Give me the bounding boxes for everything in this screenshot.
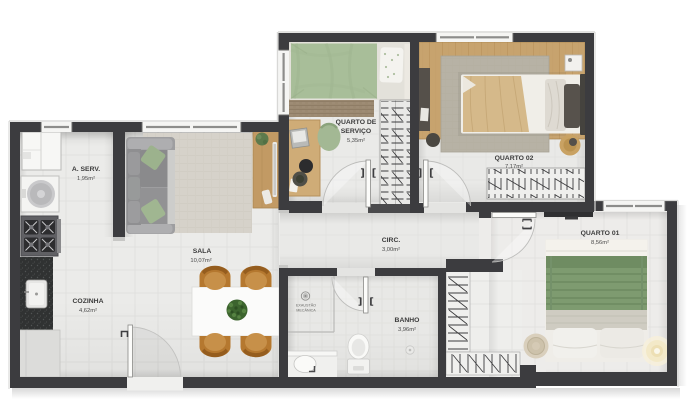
svg-text:3,96m²: 3,96m²	[398, 327, 416, 333]
svg-text:8,56m²: 8,56m²	[591, 240, 609, 246]
svg-text:5,35m²: 5,35m²	[347, 138, 365, 144]
svg-text:SALA: SALA	[193, 248, 212, 255]
svg-text:A. SERV.: A. SERV.	[72, 166, 100, 173]
svg-text:SERVIÇO: SERVIÇO	[341, 128, 371, 135]
svg-text:QUARTO DE: QUARTO DE	[336, 119, 377, 126]
svg-text:7,17m²: 7,17m²	[505, 164, 523, 170]
svg-text:EXAUSTÃO: EXAUSTÃO	[296, 303, 316, 308]
svg-text:CIRC.: CIRC.	[382, 237, 401, 244]
svg-text:4,62m²: 4,62m²	[79, 308, 97, 314]
svg-text:BANHO: BANHO	[395, 317, 420, 324]
svg-text:MECÂNICA: MECÂNICA	[296, 308, 316, 313]
svg-text:QUARTO 02: QUARTO 02	[495, 155, 534, 162]
svg-text:3,00m²: 3,00m²	[382, 247, 400, 253]
svg-text:10,07m²: 10,07m²	[190, 258, 211, 264]
svg-text:COZINHA: COZINHA	[73, 298, 104, 305]
svg-text:QUARTO 01: QUARTO 01	[581, 230, 620, 237]
svg-text:1,95m²: 1,95m²	[77, 176, 95, 182]
